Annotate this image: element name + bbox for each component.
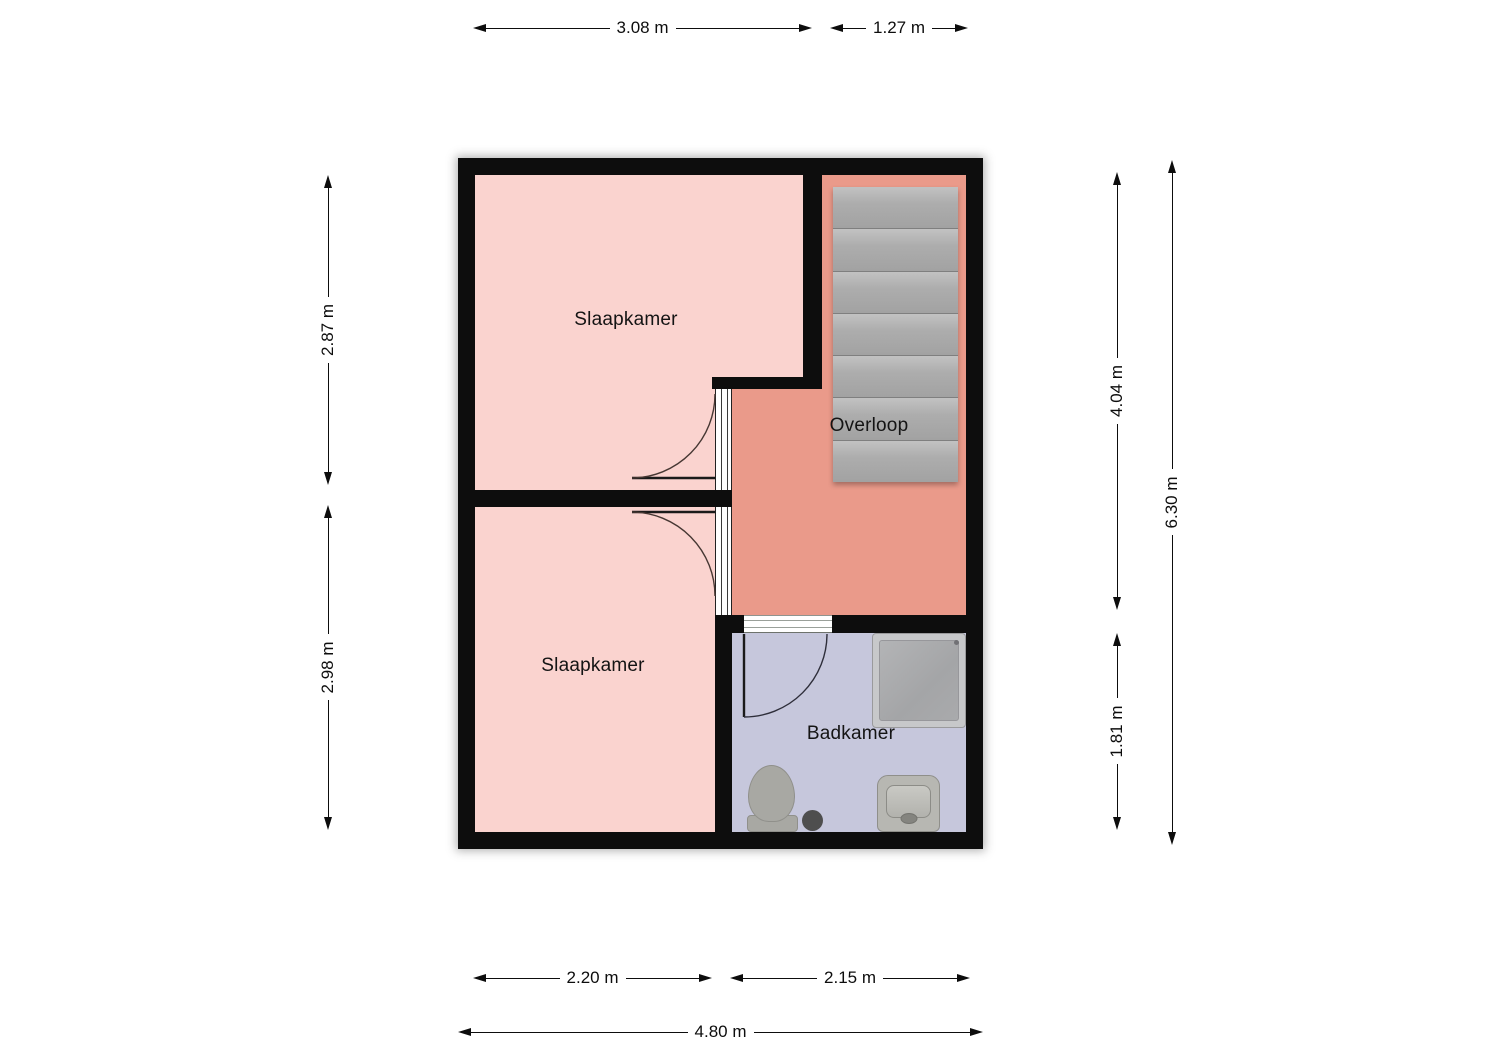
stair-step	[833, 314, 958, 356]
doorway-bedroom-bottom	[715, 507, 732, 615]
sink-icon	[877, 775, 940, 832]
dimension-label: 4.80 m	[688, 1024, 754, 1040]
arrowhead-left-icon	[324, 472, 332, 485]
floorplan-canvas: Slaapkamer Slaapkamer Overloop Badkamer …	[0, 0, 1500, 1061]
room-label-bedroom-bottom: Slaapkamer	[541, 655, 644, 677]
dimension-label: 2.15 m	[817, 970, 883, 986]
dimension-label: 2.87 m	[320, 297, 336, 363]
dimension-top-bedroom-width: 3.08 m	[473, 20, 812, 36]
landing-floor	[732, 389, 822, 615]
dimension-line	[626, 978, 700, 979]
dimension-label: 3.08 m	[610, 20, 676, 36]
arrowhead-right-icon	[955, 24, 968, 32]
dimension-line	[883, 978, 957, 979]
arrowhead-left-icon	[1113, 597, 1121, 610]
stair-step	[833, 356, 958, 398]
dimension-line	[471, 1032, 688, 1033]
dimension-bottom-bedroom-width: 2.20 m	[473, 970, 712, 986]
dimension-line	[743, 978, 817, 979]
arrowhead-left-icon	[473, 974, 486, 982]
arrowhead-left-icon	[473, 24, 486, 32]
arrowhead-right-icon	[957, 974, 970, 982]
floor-drain-icon	[802, 810, 823, 831]
dimension-left-bedroom-bottom-height: 2.98 m	[320, 505, 336, 830]
sink-faucet-icon	[900, 813, 917, 824]
dimension-top-stairs-width: 1.27 m	[830, 20, 968, 36]
dimension-line	[1117, 646, 1118, 699]
arrowhead-right-icon	[970, 1028, 983, 1036]
doorway-bedroom-top	[715, 389, 732, 490]
dimension-line	[932, 28, 955, 29]
room-label-landing: Overloop	[830, 415, 909, 437]
stair-step	[833, 272, 958, 314]
arrowhead-left-icon	[730, 974, 743, 982]
arrowhead-left-icon	[324, 817, 332, 830]
arrowhead-right-icon	[324, 505, 332, 518]
dimension-label: 1.81 m	[1109, 699, 1125, 765]
wall-bedroom-top-right	[803, 175, 822, 389]
dimension-label: 6.30 m	[1164, 470, 1180, 536]
arrowhead-right-icon	[1168, 160, 1176, 173]
dimension-bottom-total-width: 4.80 m	[458, 1024, 983, 1040]
dimension-label: 2.20 m	[560, 970, 626, 986]
arrowhead-right-icon	[799, 24, 812, 32]
room-label-bedroom-top: Slaapkamer	[574, 309, 677, 331]
room-label-bathroom: Badkamer	[807, 723, 895, 745]
dimension-right-bathroom-height: 1.81 m	[1109, 633, 1125, 830]
arrowhead-right-icon	[1113, 172, 1121, 185]
wall-notch	[712, 377, 822, 389]
dimension-line	[1117, 185, 1118, 358]
stairs	[833, 187, 958, 482]
dimension-line	[328, 518, 329, 635]
wall-bedroom-bathroom	[715, 615, 732, 832]
dimension-line	[486, 978, 560, 979]
stair-step	[833, 229, 958, 271]
dimension-line	[754, 1032, 971, 1033]
dimension-line	[328, 363, 329, 472]
arrowhead-left-icon	[1168, 832, 1176, 845]
shower-icon	[872, 633, 966, 728]
dimension-line	[1172, 173, 1173, 470]
dimension-label: 2.98 m	[320, 635, 336, 701]
arrowhead-left-icon	[1113, 817, 1121, 830]
arrowhead-left-icon	[458, 1028, 471, 1036]
dimension-line	[676, 28, 800, 29]
dimension-label: 1.27 m	[866, 20, 932, 36]
dimension-line	[843, 28, 866, 29]
dimension-line	[328, 700, 329, 817]
shower-drain-icon	[954, 640, 959, 645]
dimension-line	[1172, 535, 1173, 832]
dimension-line	[328, 188, 329, 297]
shower-tray	[879, 640, 959, 721]
stair-step	[833, 187, 958, 229]
dimension-right-landing-height: 4.04 m	[1109, 172, 1125, 610]
dimension-label: 4.04 m	[1109, 358, 1125, 424]
dimension-left-bedroom-top-height: 2.87 m	[320, 175, 336, 485]
doorway-bathroom	[744, 615, 832, 633]
wall-between-bedrooms	[475, 490, 732, 507]
stair-step	[833, 441, 958, 482]
dimension-line	[486, 28, 610, 29]
arrowhead-right-icon	[699, 974, 712, 982]
dimension-right-total-height: 6.30 m	[1164, 160, 1180, 845]
arrowhead-left-icon	[830, 24, 843, 32]
building-outline: Slaapkamer Slaapkamer Overloop Badkamer	[458, 158, 983, 849]
arrowhead-right-icon	[324, 175, 332, 188]
dimension-line	[1117, 764, 1118, 817]
dimension-line	[1117, 424, 1118, 597]
dimension-bottom-bathroom-width: 2.15 m	[730, 970, 970, 986]
arrowhead-right-icon	[1113, 633, 1121, 646]
toilet-icon	[748, 765, 795, 822]
